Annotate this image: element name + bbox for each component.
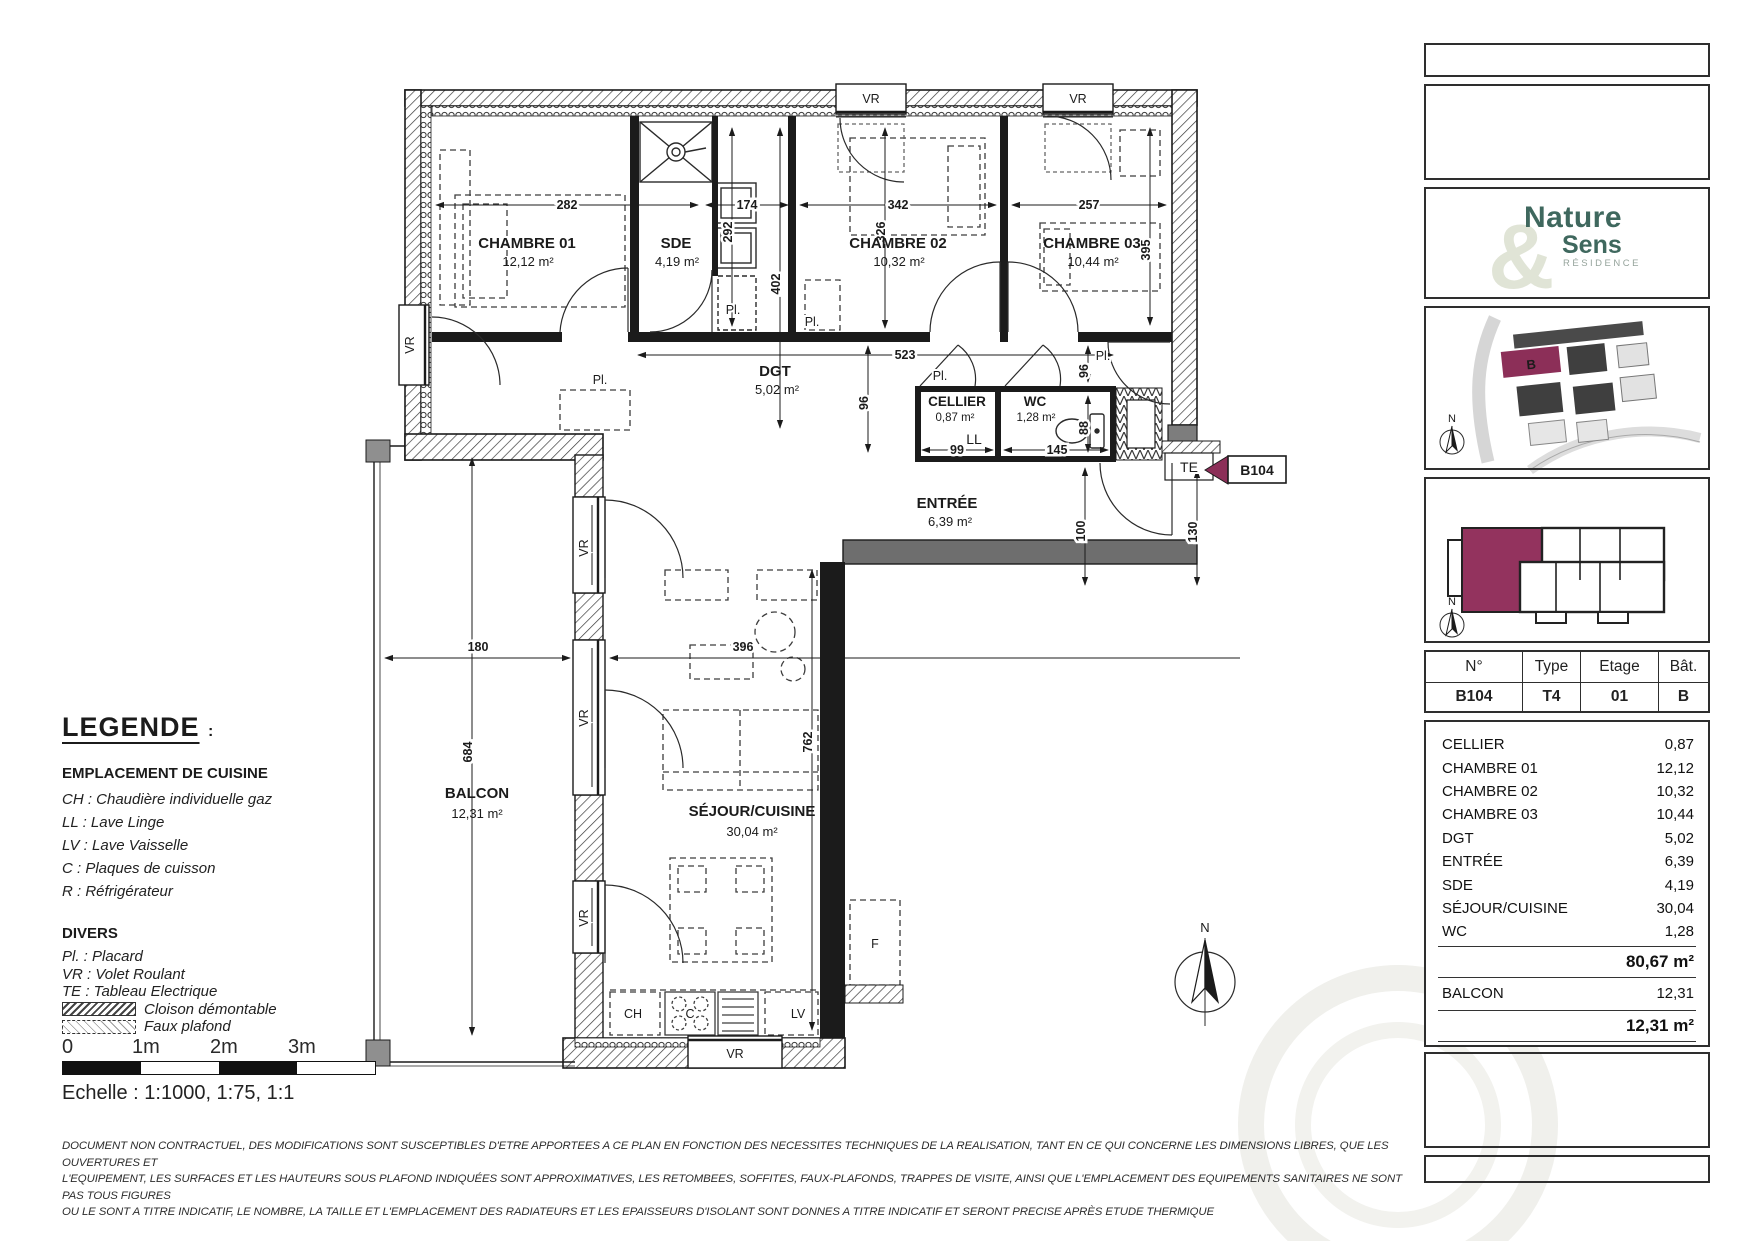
unit-value-bat: B [1659,683,1708,713]
unit-table-value-row: B104 T4 01 B [1426,683,1708,713]
dim-762: 762 [801,732,815,753]
scale-tick-2m: 2m [210,1036,238,1059]
legend-swatch-fauxplafond: Faux plafond [62,1018,392,1036]
dim-145: 145 [1047,443,1068,457]
area-value: 4,19 [1665,877,1694,894]
area-row-sejour: SÉJOUR/CUISINE30,04 [1442,897,1694,920]
dim-282: 282 [557,198,578,212]
legend-item-ll: LL : Lave Linge [62,811,392,834]
scale-ticks: 0 1m 2m 3m [62,1036,376,1058]
pl-label-dgt: Pl. [593,373,608,387]
scale-seg-2 [141,1062,219,1074]
divider [1438,1010,1696,1011]
compass-plan: N [1175,920,1235,1026]
area-row-cellier: CELLIER0,87 [1442,733,1694,756]
room-cellier-area: 0,87 m² [936,412,975,424]
room-dgt: DGT [759,363,791,380]
area-value: 12,31 [1656,985,1694,1002]
dim-96-right: 96 [1077,364,1091,378]
ll-label: LL [966,431,982,447]
room-entree: ENTRÉE [917,495,978,512]
legend-divers-heading: DIVERS [62,925,392,942]
area-value: 12,12 [1656,760,1694,777]
legend-divers-items: Pl. : Placard VR : Volet Roulant TE : Ta… [62,948,392,1036]
dim-88: 88 [1077,421,1091,435]
scale-seg-4 [297,1062,375,1074]
area-row-entree: ENTRÉE6,39 [1442,850,1694,873]
vr-label-west1: VR [577,539,591,556]
room-chambre01: CHAMBRE 01 [478,235,576,252]
area-label: WC [1442,923,1467,940]
room-chambre02: CHAMBRE 02 [849,235,947,252]
legend-item-r: R : Réfrigérateur [62,880,392,903]
room-chambre02-area: 10,32 m² [873,254,925,269]
faux-plafond-swatch [62,1020,136,1034]
legend-swatch-cloison: Cloison démontable [62,1001,392,1019]
area-label: DGT [1442,830,1474,847]
sidebar-keyplan-box [1424,477,1710,643]
total-area: 80,67 m² [1442,949,1694,975]
north-label-plan: N [1200,920,1209,935]
room-chambre01-area: 12,12 m² [502,254,554,269]
area-label: BALCON [1442,985,1504,1002]
sidebar-box-empty-2 [1424,84,1710,180]
te-label: TE [1180,459,1198,475]
dim-99: 99 [950,443,964,457]
dim-257: 257 [1079,198,1100,212]
vr-label-left: VR [403,336,417,353]
dim-395: 395 [1139,240,1153,261]
unit-flag-label: B104 [1240,462,1274,478]
dim-180: 180 [468,640,489,654]
legend-item-c: C : Plaques de cuisson [62,857,392,880]
dim-96-left: 96 [857,396,871,410]
room-balcon: BALCON [445,785,509,802]
unit-table-header-row: N° Type Etage Bât. [1426,652,1708,683]
scale-seg-3 [219,1062,297,1074]
area-label: CELLIER [1442,736,1505,753]
unit-header-type: Type [1523,652,1581,682]
scale-strip [62,1061,376,1075]
area-value: 1,28 [1665,923,1694,940]
sidebar-sitemap-box [1424,306,1710,470]
unit-value-etage: 01 [1581,683,1659,713]
room-chambre03: CHAMBRE 03 [1043,235,1141,252]
room-sejour: SÉJOUR/CUISINE [689,803,816,820]
unit-entry-flag: B104 [1205,456,1286,484]
area-value: 10,32 [1656,783,1694,800]
unit-header-etage: Etage [1581,652,1659,682]
area-row-balcon: BALCON12,31 [1442,980,1694,1008]
area-row-sde: SDE4,19 [1442,873,1694,896]
unit-info-table: N° Type Etage Bât. B104 T4 01 B [1424,650,1710,713]
divider [1438,946,1696,947]
unit-value-numero: B104 [1426,683,1523,713]
dim-396: 396 [733,640,754,654]
logo-nature: Nature [1524,201,1622,235]
sidebar-logo-box: & Nature Sens RÉSIDENCE [1424,187,1710,299]
disclaimer: DOCUMENT NON CONTRACTUEL, DES MODIFICATI… [62,1138,1407,1221]
area-label: CHAMBRE 02 [1442,783,1538,800]
pl-label-cellier: Pl. [933,369,948,383]
sidebar-box-empty-3 [1424,1052,1710,1148]
lv-label: LV [791,1007,806,1021]
area-row-chambre03: CHAMBRE 0310,44 [1442,803,1694,826]
room-sejour-area: 30,04 m² [726,824,778,839]
room-balcon-area: 12,31 m² [451,806,503,821]
sidebar-box-empty-4 [1424,1155,1710,1183]
disclaimer-line3: OU LE SONT A TITRE INDICATIF, LE NOMBRE,… [62,1204,1407,1221]
unit-header-bat: Bât. [1659,652,1708,682]
dim-174: 174 [737,198,758,212]
area-label: CHAMBRE 03 [1442,806,1538,823]
area-value: 30,04 [1656,900,1694,917]
pl-label-ch03: Pl. [1096,349,1111,363]
area-value: 0,87 [1665,736,1694,753]
scale-tick-0: 0 [62,1036,73,1059]
area-row-chambre02: CHAMBRE 0210,32 [1442,780,1694,803]
legend-item-lv: LV : Lave Vaisselle [62,834,392,857]
disclaimer-line1: DOCUMENT NON CONTRACTUEL, DES MODIFICATI… [62,1138,1407,1171]
unit-value-type: T4 [1523,683,1581,713]
area-value: 10,44 [1656,806,1694,823]
sidebar-box-empty-1 [1424,43,1710,77]
divider [1438,1041,1696,1042]
logo-sens: Sens [1562,231,1622,260]
scale-seg-1 [63,1062,141,1074]
dim-130: 130 [1186,522,1200,543]
divider [1438,977,1696,978]
area-row-dgt: DGT5,02 [1442,827,1694,850]
legend-swatch-fauxplafond-label: Faux plafond [144,1018,231,1036]
scale-text: Echelle : 1:1000, 1:75, 1:1 [62,1082,294,1105]
area-value: 5,02 [1665,830,1694,847]
room-cellier: CELLIER [928,394,986,409]
logo-residence: RÉSIDENCE [1563,258,1641,269]
pl-label-sde: Pl. [726,303,741,317]
vr-label-west3: VR [577,909,591,926]
legend-kitchen-items: CH : Chaudière individuelle gaz LL : Lav… [62,788,392,903]
legend-item-ch: CH : Chaudière individuelle gaz [62,788,392,811]
area-row-chambre01: CHAMBRE 0112,12 [1442,756,1694,779]
balcon-total-area: 12,31 m² [1442,1013,1694,1039]
c-label: C [685,1007,694,1021]
cloison-swatch [62,1002,136,1016]
vr-label-top2: VR [1069,92,1086,106]
disclaimer-line2: L'EQUIPEMENT, LES SURFACES ET LES HAUTEU… [62,1171,1407,1204]
vr-label-top1: VR [862,92,879,106]
dim-292: 292 [721,222,735,243]
room-wc-area: 1,28 m² [1017,412,1056,424]
room-dgt-area: 5,02 m² [755,382,800,397]
legend-title: LEGENDE : [62,712,392,743]
dim-402: 402 [769,274,783,295]
floorplan-page: 282 174 342 257 402 292 326 395 523 96 9… [0,0,1754,1241]
legend-kitchen-heading: EMPLACEMENT DE CUISINE [62,765,392,782]
legend-item-te: TE : Tableau Electrique [62,983,392,1001]
area-label: ENTRÉE [1442,853,1503,870]
scale-bar: 0 1m 2m 3m [62,1036,376,1075]
legend-item-vr: VR : Volet Roulant [62,966,392,984]
scale-tick-3m: 3m [288,1036,316,1059]
room-areas-table: CELLIER0,87 CHAMBRE 0112,12 CHAMBRE 0210… [1424,720,1710,1047]
room-chambre03-area: 10,44 m² [1067,254,1119,269]
dim-684: 684 [461,742,475,763]
ch-label: CH [624,1007,642,1021]
legend-swatch-cloison-label: Cloison démontable [144,1001,277,1019]
dim-523: 523 [895,348,916,362]
area-label: SÉJOUR/CUISINE [1442,900,1568,917]
f-label: F [871,937,879,951]
area-label: CHAMBRE 01 [1442,760,1538,777]
area-label: SDE [1442,877,1473,894]
pl-label-ch02: Pl. [805,315,820,329]
legend: LEGENDE : EMPLACEMENT DE CUISINE CH : Ch… [62,712,392,1036]
area-value: 6,39 [1665,853,1694,870]
vr-label-bottom: VR [726,1047,743,1061]
bathroom-fixtures [640,122,756,330]
area-row-wc: WC1,28 [1442,920,1694,943]
legend-item-pl: Pl. : Placard [62,948,392,966]
unit-header-numero: N° [1426,652,1523,682]
dim-100: 100 [1074,521,1088,542]
room-entree-area: 6,39 m² [928,514,973,529]
room-sde: SDE [661,235,692,252]
dim-342: 342 [888,198,909,212]
room-wc: WC [1024,394,1047,409]
room-sde-area: 4,19 m² [655,254,700,269]
scale-tick-1m: 1m [132,1036,160,1059]
vr-label-west2: VR [577,709,591,726]
